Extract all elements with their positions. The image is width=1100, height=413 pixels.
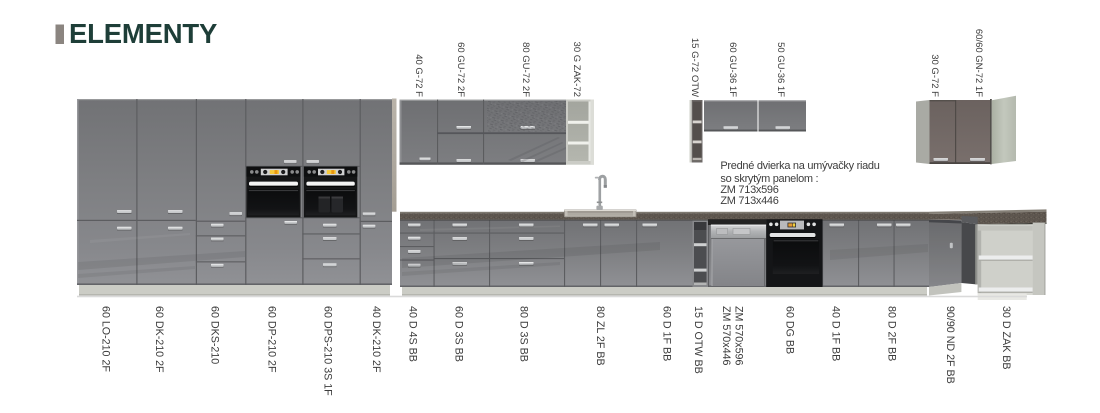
svg-text:60 LO-210 2F: 60 LO-210 2F <box>100 306 112 372</box>
svg-text:15 D OTW BB: 15 D OTW BB <box>692 306 704 374</box>
svg-text:60 DKS-210: 60 DKS-210 <box>209 306 221 364</box>
svg-text:60 GU-36 1F: 60 GU-36 1F <box>727 42 738 97</box>
svg-text:60 D 3S BB: 60 D 3S BB <box>453 306 465 362</box>
svg-text:60 DP-210 2F: 60 DP-210 2F <box>265 306 277 373</box>
svg-text:60 DK-210 2F: 60 DK-210 2F <box>153 306 165 373</box>
svg-text:90/90 ND 2F BB: 90/90 ND 2F BB <box>944 306 956 384</box>
svg-text:60 DPS-210 3S 1F: 60 DPS-210 3S 1F <box>321 306 333 396</box>
svg-text:80 D 2F BB: 80 D 2F BB <box>885 306 897 361</box>
svg-text:80 D 3S BB: 80 D 3S BB <box>518 306 530 362</box>
svg-text:ELEMENTY: ELEMENTY <box>69 18 217 49</box>
svg-text:ZM 570x596: ZM 570x596 <box>733 306 745 365</box>
svg-text:80 GU-72 2F: 80 GU-72 2F <box>520 42 531 97</box>
svg-text:30 G ZAK-72: 30 G ZAK-72 <box>571 42 582 97</box>
svg-text:60 GU-72 2F: 60 GU-72 2F <box>455 42 466 97</box>
svg-text:50 GU-36 1F: 50 GU-36 1F <box>775 42 786 97</box>
svg-text:80 ZL 2F BB: 80 ZL 2F BB <box>594 306 606 366</box>
svg-text:30 G-72 F: 30 G-72 F <box>929 54 940 97</box>
svg-text:40 DK-210 2F: 40 DK-210 2F <box>370 306 382 373</box>
svg-text:15 G-72 OTW: 15 G-72 OTW <box>689 38 700 97</box>
svg-text:40 D 4S BB: 40 D 4S BB <box>406 306 418 362</box>
svg-text:40 G-72 F: 40 G-72 F <box>413 54 424 97</box>
svg-text:Predné dvierka na umývačky ria: Predné dvierka na umývačky riadu <box>720 160 879 172</box>
svg-text:ZM 713x446: ZM 713x446 <box>720 195 778 207</box>
svg-text:ZM 570x446: ZM 570x446 <box>720 306 732 365</box>
svg-text:40 D 1F BB: 40 D 1F BB <box>829 306 841 361</box>
svg-text:60/60 GN-72 1F: 60/60 GN-72 1F <box>973 29 984 97</box>
svg-text:30 D ZAK BB: 30 D ZAK BB <box>1000 306 1012 370</box>
svg-text:60 D 1F BB: 60 D 1F BB <box>660 306 672 361</box>
svg-text:60 DG BB: 60 DG BB <box>784 306 796 354</box>
